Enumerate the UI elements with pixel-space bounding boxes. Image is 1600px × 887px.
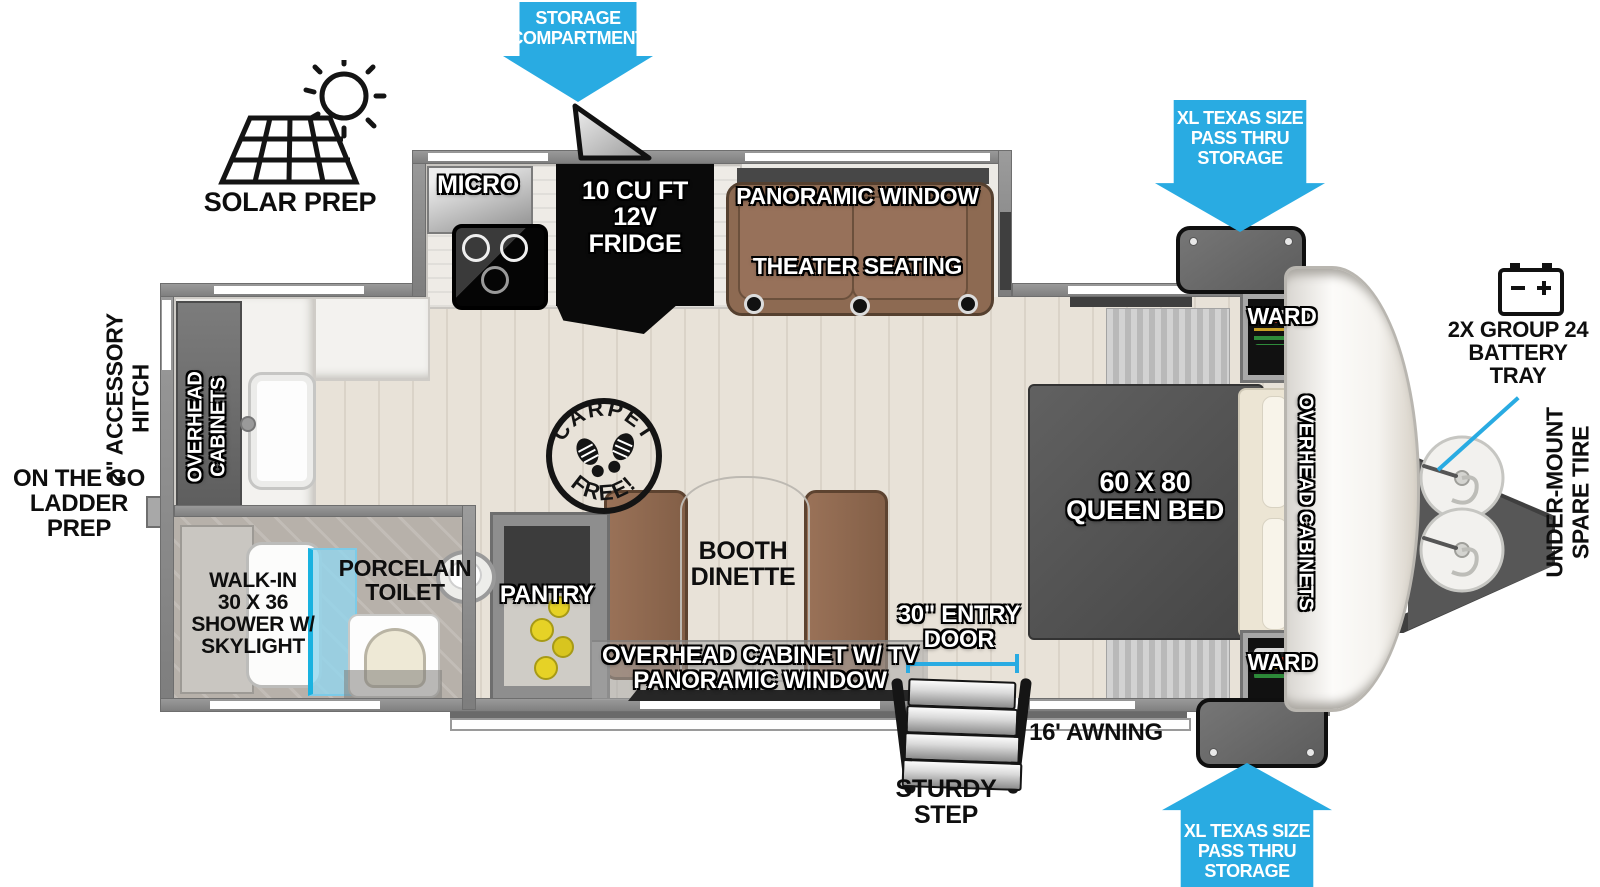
bedroom-vent	[1070, 297, 1192, 307]
seat-foot	[958, 294, 978, 314]
panoramic-window-bottom-label: PANORAMIC WINDOW	[582, 668, 938, 693]
panoramic-window-top-label: PANORAMIC WINDOW	[730, 184, 985, 208]
battery-tray-label: 2X GROUP 24 BATTERY TRAY	[1436, 318, 1600, 387]
pass-thru-bottom-label: XL TEXAS SIZE	[1162, 821, 1332, 841]
storage-compartment-flag-icon	[555, 100, 659, 164]
storage-compartment-label: STORAGE	[503, 8, 653, 28]
ward-bottom-label: WARD	[1240, 650, 1324, 674]
theater-seating-label: THEATER SEATING	[730, 254, 985, 278]
pass-thru-top-label: PASS THRU	[1155, 128, 1325, 148]
storage-compartment-label: COMPARTMENT	[503, 28, 653, 48]
wall-bathroom-top	[174, 505, 474, 517]
solar-prep-label: SOLAR PREP	[200, 188, 380, 216]
seat-foot	[850, 296, 870, 316]
window-slot	[745, 153, 990, 161]
seat-foot	[744, 294, 764, 314]
spare-tire-label: UNDER-MOUNT SPARE TIRE	[1542, 396, 1595, 588]
shower-label: WALK-IN 30 X 36 SHOWER W/ SKYLIGHT	[176, 570, 330, 658]
pass-thru-top-label: XL TEXAS SIZE	[1155, 108, 1325, 128]
bed-step-pad-top	[1106, 308, 1230, 388]
battery-icon	[1498, 268, 1564, 316]
micro-label: MICRO	[428, 172, 528, 198]
queen-bed-label: 60 X 80 QUEEN BED	[1055, 468, 1235, 525]
burner-icon	[481, 266, 509, 294]
pass-thru-bottom-label: STORAGE	[1162, 861, 1332, 881]
wall-bathroom-right	[462, 505, 476, 710]
porcelain-toilet-label: PORCELAIN TOILET	[334, 556, 476, 604]
pantry-can	[530, 618, 554, 642]
faucet-icon	[242, 418, 254, 430]
rv-floorplan-diagram: CARPET FREE!	[0, 0, 1600, 887]
pass-thru-top-label: STORAGE	[1155, 148, 1325, 168]
carpet-free-bottom-text: FREE!	[567, 470, 642, 506]
entry-door-dimension-tick	[1015, 654, 1019, 673]
window-slot	[162, 300, 171, 370]
window-slot	[1068, 286, 1196, 294]
window-slot	[1030, 701, 1135, 709]
theater-seat-back	[738, 196, 854, 300]
side-window	[1000, 212, 1011, 290]
ward-top-label: WARD	[1240, 304, 1324, 328]
solar-prep-icon	[210, 60, 390, 192]
wall-slide-step	[412, 150, 426, 297]
shoe-print-icon	[603, 430, 638, 477]
burner-icon	[500, 234, 528, 262]
pantry-label: PANTRY	[494, 582, 600, 607]
ladder-prep-label: ON THE GO LADDER PREP	[0, 466, 158, 542]
pass-thru-bottom-arrow: XL TEXAS SIZE PASS THRU STORAGE	[1162, 763, 1332, 887]
pass-thru-bottom-label: PASS THRU	[1162, 841, 1332, 861]
entry-door-label: 30" ENTRY DOOR	[896, 602, 1022, 652]
pass-thru-top-arrow: XL TEXAS SIZE PASS THRU STORAGE	[1155, 100, 1325, 232]
window-slot	[640, 701, 880, 709]
svg-text:FREE!: FREE!	[567, 470, 642, 506]
shoe-print-icon	[572, 435, 609, 481]
theater-seat-back	[852, 196, 968, 300]
overhead-cabinets-rear-label: OVERHEAD CABINETS	[185, 350, 231, 505]
booth-dinette-label: BOOTH DINETTE	[686, 538, 800, 591]
sturdy-step-label: STURDY STEP	[880, 776, 1012, 829]
burner-icon	[462, 234, 490, 262]
window-slot	[428, 153, 548, 161]
toilet-base	[344, 670, 442, 698]
window-slot	[214, 286, 364, 294]
storage-compartment-arrow: STORAGE COMPARTMENT	[503, 2, 653, 102]
window-slot	[210, 701, 380, 709]
overhead-cabinets-bedroom-label: OVERHEAD CABINETS	[1295, 383, 1316, 623]
rear-kitchen-sink	[248, 372, 316, 490]
fridge-label: 10 CU FT 12V FRIDGE	[570, 178, 700, 257]
carpet-free-stamp: CARPET FREE!	[544, 396, 664, 516]
awning-label: 16' AWNING	[1018, 720, 1174, 745]
pantry-can	[534, 656, 558, 680]
